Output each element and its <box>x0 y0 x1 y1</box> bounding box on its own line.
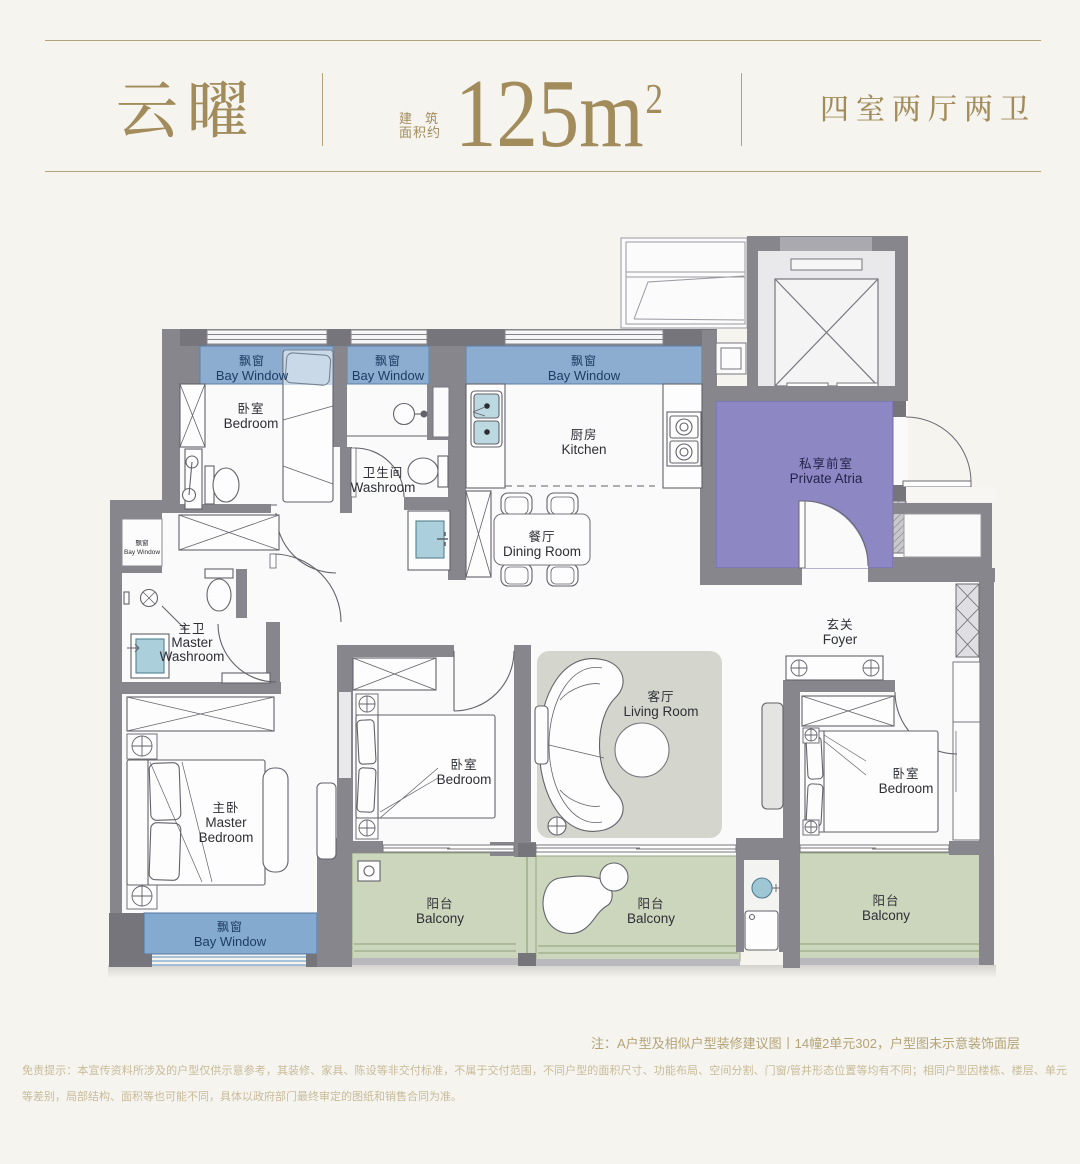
svg-text:阳台: 阳台 <box>426 896 453 911</box>
svg-text:Private Atria: Private Atria <box>790 471 863 486</box>
svg-text:Bay Window: Bay Window <box>124 549 160 556</box>
svg-text:Master: Master <box>205 815 247 830</box>
svg-text:Bedroom: Bedroom <box>437 772 492 787</box>
svg-text:Bedroom: Bedroom <box>224 416 279 431</box>
svg-text:Balcony: Balcony <box>416 911 464 926</box>
svg-text:卧室: 卧室 <box>450 757 477 772</box>
svg-text:飘窗: 飘窗 <box>571 354 597 368</box>
svg-text:飘窗: 飘窗 <box>217 920 243 934</box>
svg-text:Bay Window: Bay Window <box>216 368 289 383</box>
svg-text:Bedroom: Bedroom <box>879 781 934 796</box>
svg-text:Balcony: Balcony <box>627 911 675 926</box>
svg-text:餐厅: 餐厅 <box>528 529 555 544</box>
svg-text:Washroom: Washroom <box>160 649 225 664</box>
svg-text:Foyer: Foyer <box>823 632 858 647</box>
svg-text:Dining Room: Dining Room <box>503 544 581 559</box>
svg-text:卫生间: 卫生间 <box>363 466 404 480</box>
svg-text:Bay Window: Bay Window <box>548 368 621 383</box>
svg-text:Bay Window: Bay Window <box>352 368 425 383</box>
svg-text:私享前室: 私享前室 <box>799 456 853 471</box>
svg-text:卧室: 卧室 <box>237 401 264 416</box>
svg-text:主卫: 主卫 <box>178 622 205 636</box>
svg-text:Washroom: Washroom <box>351 480 416 495</box>
svg-text:Bedroom: Bedroom <box>199 830 254 845</box>
svg-text:客厅: 客厅 <box>647 689 674 704</box>
svg-text:阳台: 阳台 <box>637 896 664 911</box>
svg-text:玄关: 玄关 <box>826 617 853 632</box>
svg-text:Master: Master <box>171 635 213 650</box>
svg-text:阳台: 阳台 <box>872 893 899 908</box>
svg-text:主卧: 主卧 <box>212 801 239 815</box>
svg-text:Kitchen: Kitchen <box>561 442 606 457</box>
svg-text:Living Room: Living Room <box>623 704 698 719</box>
svg-text:飘窗: 飘窗 <box>136 538 149 547</box>
svg-text:飘窗: 飘窗 <box>375 354 401 368</box>
svg-text:厨房: 厨房 <box>570 427 597 442</box>
svg-text:飘窗: 飘窗 <box>239 354 265 368</box>
svg-text:卧室: 卧室 <box>892 766 919 781</box>
svg-text:Balcony: Balcony <box>862 908 910 923</box>
svg-text:Bay Window: Bay Window <box>194 934 267 949</box>
